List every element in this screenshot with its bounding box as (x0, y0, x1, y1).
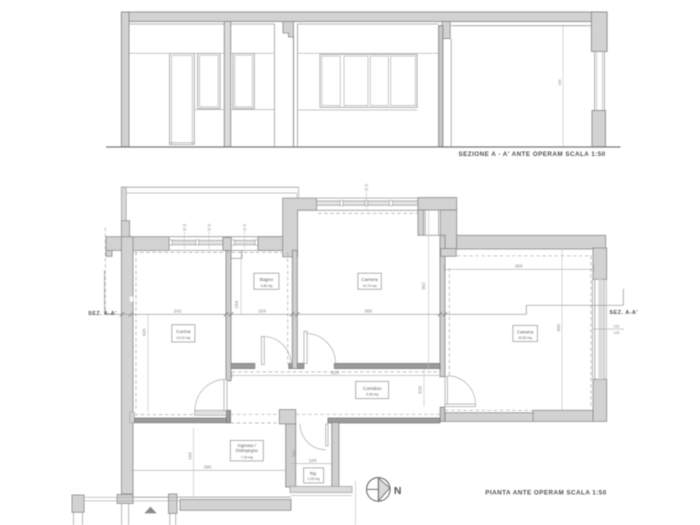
svg-text:Bagno: Bagno (260, 277, 274, 282)
svg-text:15: 15 (207, 227, 211, 231)
svg-text:15: 15 (183, 227, 187, 231)
svg-text:Camera: Camera (361, 277, 378, 282)
svg-text:Disimpegno: Disimpegno (236, 448, 259, 453)
svg-text:SEZIONE A - A' ANTE OPERAM: SEZIONE A - A' ANTE OPERAM SCALA 1:50 (459, 151, 606, 158)
svg-text:623: 623 (331, 370, 339, 375)
svg-text:145: 145 (613, 331, 619, 335)
svg-text:109: 109 (309, 458, 317, 463)
svg-text:10.02 mq: 10.02 mq (176, 336, 190, 340)
svg-text:7.19 mq: 7.19 mq (241, 455, 253, 459)
svg-text:10.53 mq: 10.53 mq (518, 336, 532, 340)
svg-text:305: 305 (558, 80, 562, 86)
svg-text:420: 420 (141, 328, 146, 336)
svg-text:Camera: Camera (517, 330, 534, 335)
svg-text:Rip.: Rip. (310, 471, 317, 476)
svg-text:15: 15 (365, 187, 369, 191)
svg-text:SEZ. A-A': SEZ. A-A' (88, 311, 117, 317)
svg-text:4.46 mq: 4.46 mq (260, 284, 272, 288)
svg-text:230: 230 (613, 325, 619, 329)
svg-text:154: 154 (258, 308, 266, 313)
svg-text:390: 390 (204, 465, 212, 470)
svg-text:520: 520 (418, 386, 423, 394)
svg-text:194: 194 (187, 452, 192, 460)
svg-text:302: 302 (421, 282, 426, 290)
svg-text:369: 369 (515, 263, 523, 268)
svg-text:15: 15 (243, 227, 247, 231)
svg-text:SEZ. A-A': SEZ. A-A' (609, 310, 638, 316)
svg-text:242: 242 (174, 308, 182, 313)
svg-text:5.05 mq: 5.05 mq (366, 393, 378, 397)
svg-text:Corridoio: Corridoio (363, 386, 382, 391)
svg-text:14.74 mq: 14.74 mq (363, 284, 377, 288)
svg-text:PIANTA ANTE OPERAM SCALA 1:: PIANTA ANTE OPERAM SCALA 1:50 (485, 490, 606, 497)
svg-text:400: 400 (556, 324, 561, 332)
svg-text:368: 368 (364, 308, 372, 313)
svg-text:161: 161 (291, 449, 296, 457)
svg-text:N: N (394, 486, 402, 497)
svg-text:1.05 mq: 1.05 mq (308, 477, 320, 481)
svg-text:Cucina: Cucina (176, 329, 191, 334)
svg-text:254: 254 (234, 300, 239, 308)
